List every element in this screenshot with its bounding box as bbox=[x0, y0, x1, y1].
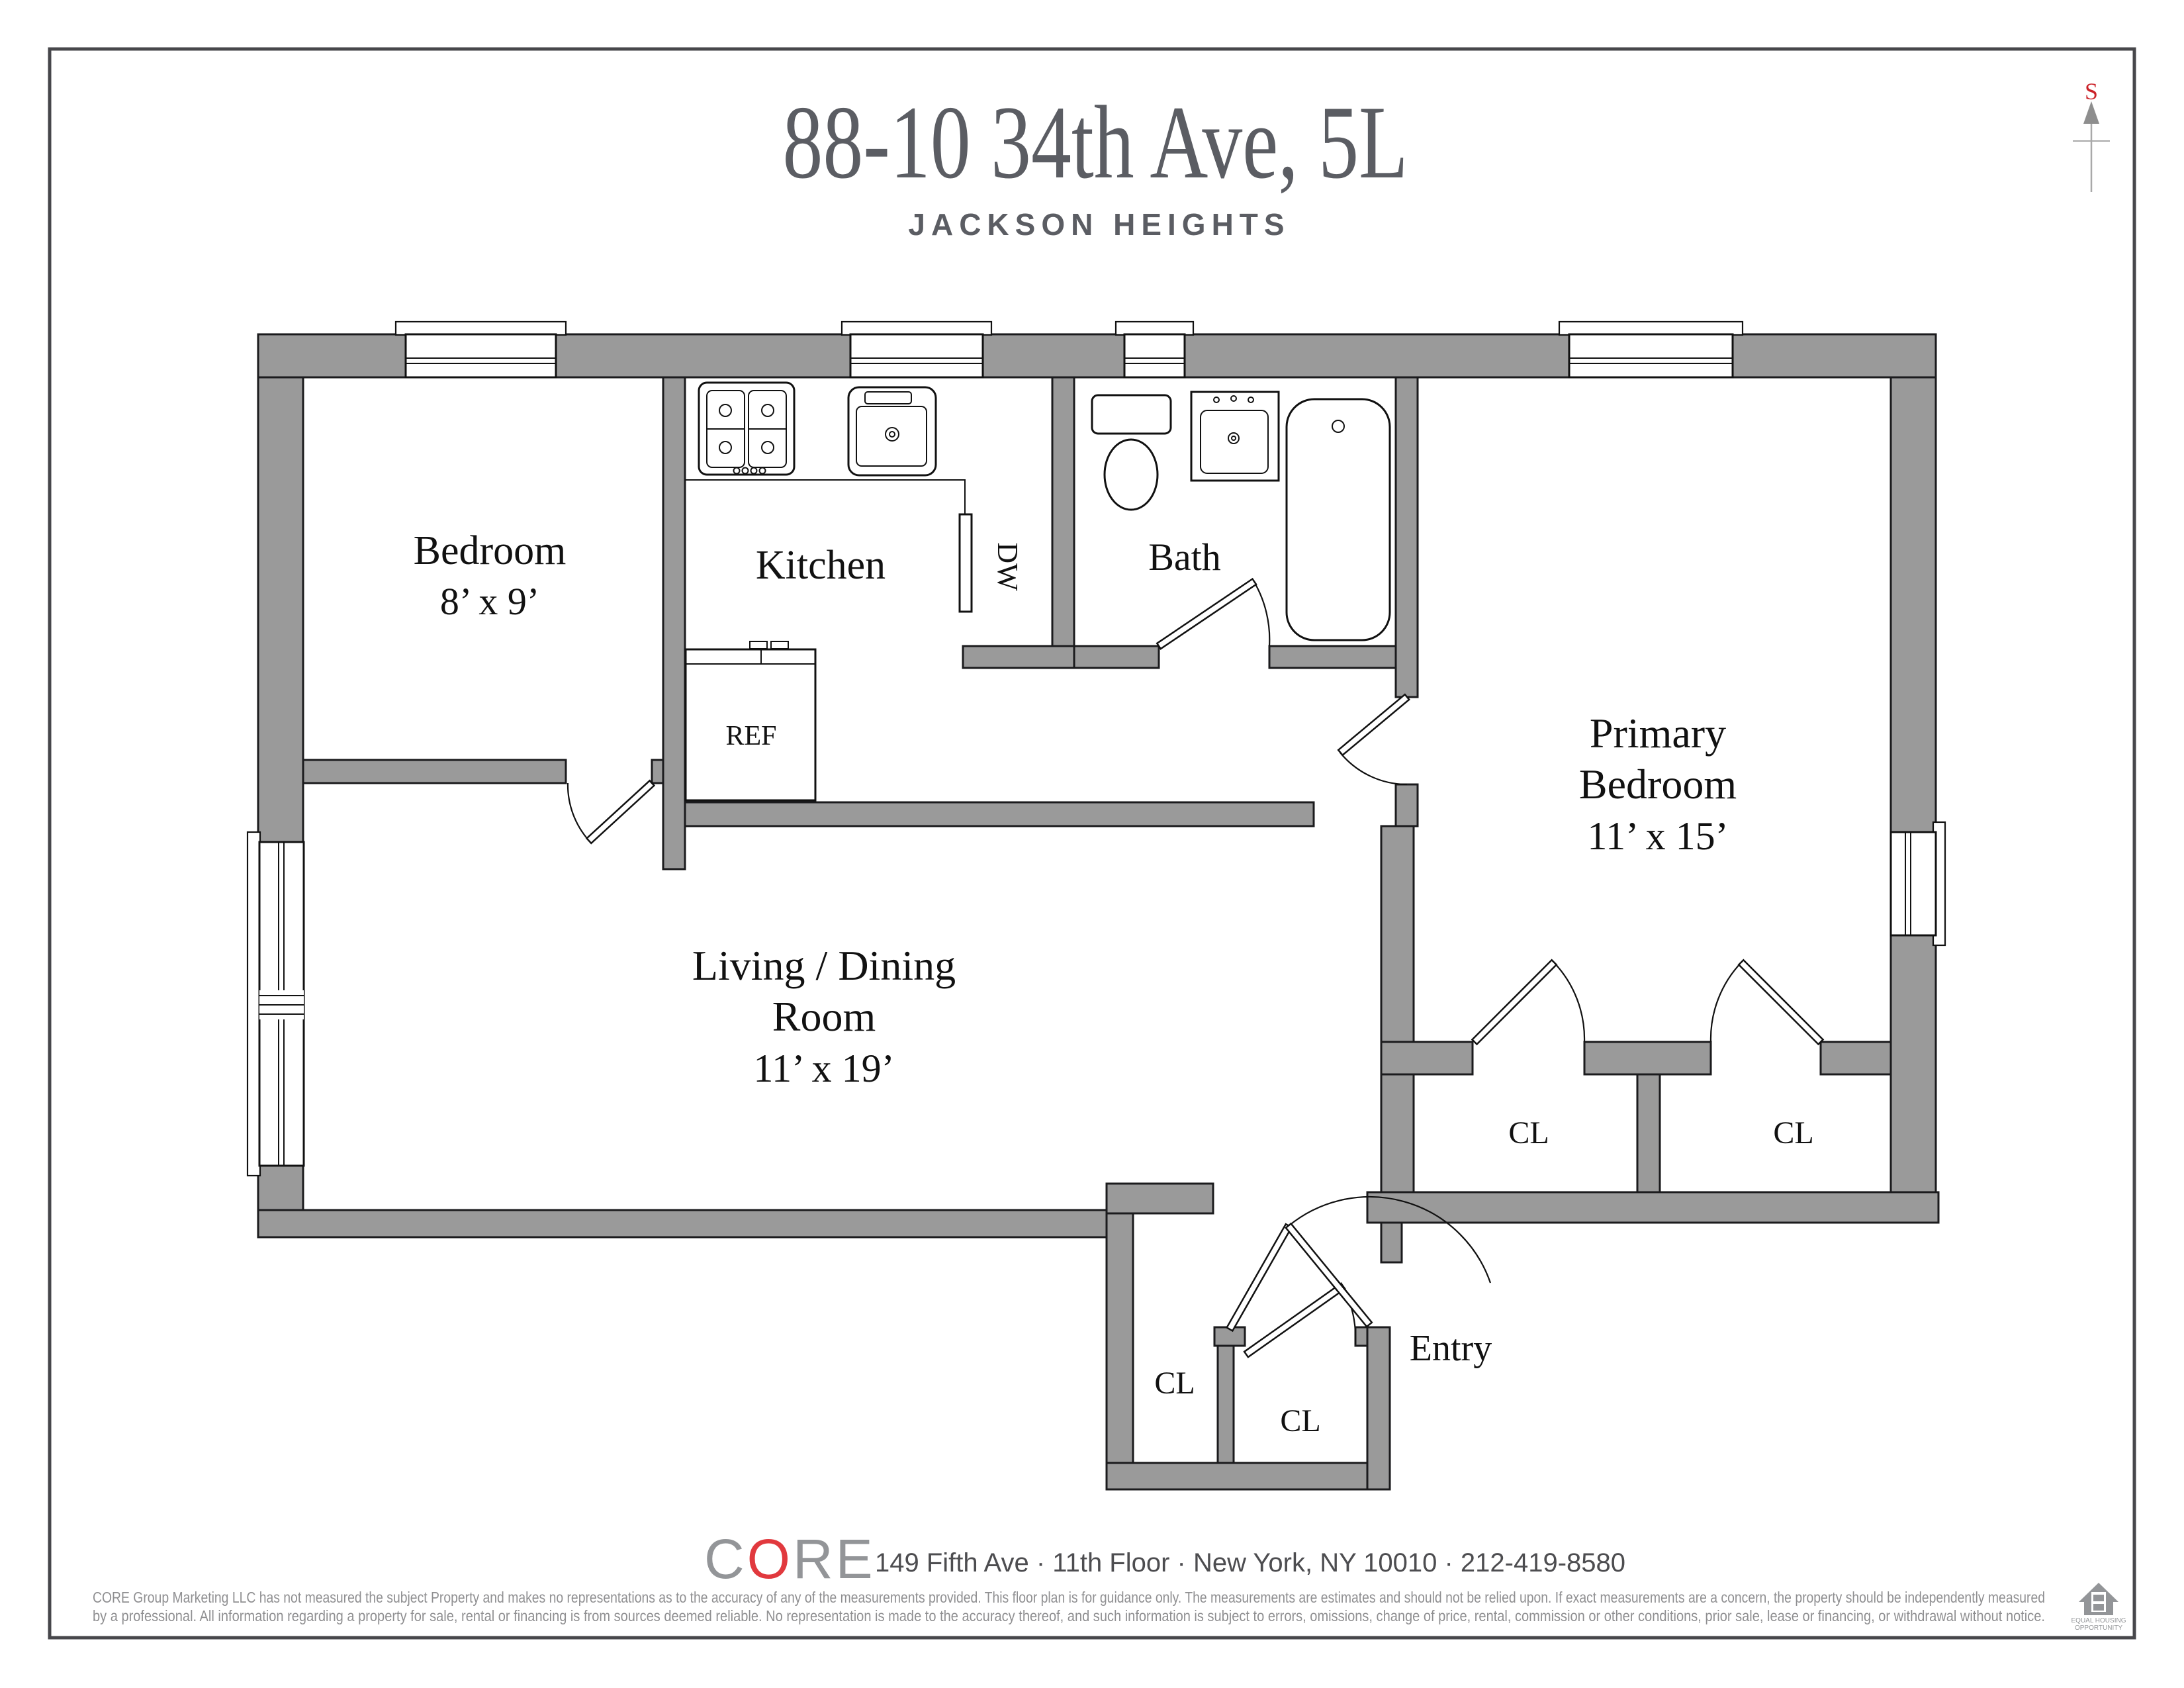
living-dining-label-line2: Room bbox=[772, 993, 876, 1040]
equal-housing-text1: EQUAL HOUSING bbox=[2071, 1617, 2126, 1624]
bedroom-dims: 8’ x 9’ bbox=[440, 580, 539, 623]
living-dining-dims: 11’ x 19’ bbox=[753, 1047, 894, 1090]
footer-address: 149 Fifth Ave · 11th Floor · New York, N… bbox=[875, 1548, 1625, 1577]
living-room-window bbox=[248, 832, 304, 1176]
disclaimer-line1: CORE Group Marketing LLC has not measure… bbox=[93, 1589, 2045, 1606]
primary-bedroom-label-line2: Bedroom bbox=[1579, 761, 1737, 808]
bedroom-door bbox=[568, 780, 654, 843]
compass-icon: S bbox=[2073, 78, 2110, 192]
core-logo-c: C bbox=[704, 1528, 747, 1590]
equal-housing-icon: EQUAL HOUSING OPPORTUNITY bbox=[2071, 1583, 2126, 1632]
stove-icon bbox=[699, 383, 794, 475]
primary-closet-door-right bbox=[1711, 960, 1823, 1044]
entry-closet-door bbox=[1244, 1284, 1355, 1357]
bath-label: Bath bbox=[1148, 536, 1221, 579]
closet-label-primary-left: CL bbox=[1508, 1115, 1549, 1150]
kitchen-label: Kitchen bbox=[756, 543, 886, 588]
disclaimer-line2: by a professional. All information regar… bbox=[93, 1607, 2045, 1624]
bath-sink-icon bbox=[1191, 392, 1279, 481]
toilet-icon bbox=[1092, 395, 1171, 510]
refrigerator-label: REF bbox=[725, 721, 776, 751]
entry-label: Entry bbox=[1410, 1328, 1492, 1369]
kitchen-sink-icon bbox=[848, 387, 936, 475]
dishwasher-label: DW bbox=[991, 542, 1024, 591]
bath-window bbox=[1116, 322, 1193, 377]
primary-bedroom-dims: 11’ x 15’ bbox=[1587, 814, 1728, 858]
equal-housing-text2: OPPORTUNITY bbox=[2075, 1624, 2122, 1632]
footer: CORE 149 Fifth Ave · 11th Floor · New Yo… bbox=[93, 1528, 2126, 1632]
walls bbox=[258, 334, 1938, 1489]
core-logo-o: O bbox=[747, 1528, 793, 1590]
closet-label-entry: CL bbox=[1280, 1403, 1320, 1438]
compass-south-label: S bbox=[2085, 78, 2098, 105]
closet-label-hall: CL bbox=[1154, 1366, 1195, 1401]
primary-bedroom-side-window bbox=[1891, 822, 1945, 945]
bedroom-window bbox=[396, 322, 566, 377]
page-subtitle: JACKSON HEIGHTS bbox=[908, 207, 1290, 242]
primary-closet-door-left bbox=[1472, 960, 1584, 1044]
bedroom-label: Bedroom bbox=[414, 528, 567, 573]
floor-plan-sheet: 88-10 34th Ave, 5L JACKSON HEIGHTS S bbox=[0, 0, 2184, 1688]
closet-label-primary-right: CL bbox=[1773, 1115, 1813, 1150]
core-logo: CORE bbox=[704, 1528, 876, 1590]
bathtub-icon bbox=[1287, 399, 1390, 640]
kitchen-window bbox=[842, 322, 991, 377]
bath-door bbox=[1157, 579, 1269, 649]
core-logo-re: RE bbox=[793, 1528, 876, 1590]
page-border bbox=[50, 49, 2134, 1638]
page-title: 88-10 34th Ave, 5L bbox=[783, 85, 1408, 201]
primary-bedroom-window bbox=[1559, 322, 1743, 377]
primary-hall-door bbox=[1338, 694, 1409, 784]
dishwasher-icon bbox=[960, 514, 972, 612]
living-dining-label-line1: Living / Dining bbox=[692, 942, 956, 989]
primary-bedroom-label-line1: Primary bbox=[1590, 710, 1726, 757]
hall-closet-door bbox=[1227, 1224, 1292, 1331]
